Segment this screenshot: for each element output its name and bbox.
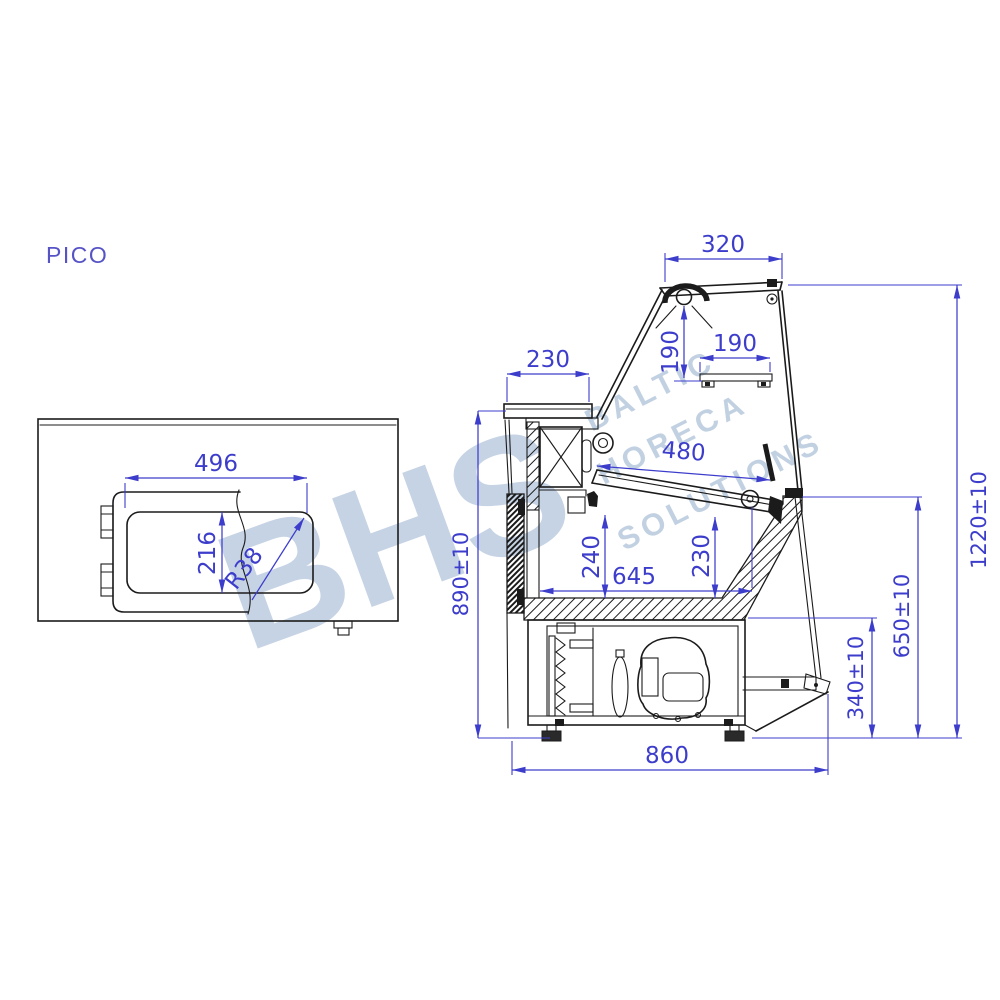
compressor-icon <box>638 638 710 722</box>
dim-machine-height: 340±10 <box>748 618 877 738</box>
dim-label: 216 <box>195 531 221 575</box>
dim-label: 650±10 <box>890 574 914 658</box>
product-title: PICO <box>46 242 108 268</box>
dim-well-height: 230 <box>689 517 715 598</box>
foot-icon <box>542 725 561 741</box>
technical-drawing-page: BHS BALTIC HORECA SOLUTIONS PICO <box>0 0 1000 1000</box>
dim-label: 860 <box>645 743 689 769</box>
dim-canopy-width: 320 <box>665 232 782 282</box>
light-ray <box>692 306 712 328</box>
dim-label: 496 <box>194 451 238 477</box>
back-skin <box>756 692 828 731</box>
dim-label: 190 <box>713 331 757 357</box>
drawing-canvas: BHS BALTIC HORECA SOLUTIONS PICO <box>0 0 1000 1000</box>
vent <box>557 623 575 633</box>
drier-icon <box>612 650 628 717</box>
dim-deck-height: 240 <box>579 515 605 598</box>
dim-label: 230 <box>689 534 715 578</box>
dim-label: 890±10 <box>449 532 473 616</box>
dim-label: 190 <box>658 330 684 374</box>
dim-label: 645 <box>612 564 656 590</box>
dim-label: 1220±10 <box>967 471 991 569</box>
side-view: 320 190 190 230 480 240 <box>449 232 991 775</box>
dim-label: 320 <box>701 232 745 258</box>
fan-icon <box>593 433 613 453</box>
foot-icon <box>725 725 744 741</box>
latch-icon <box>767 279 777 287</box>
hinge-icon <box>101 564 113 596</box>
dim-label: 240 <box>579 535 605 579</box>
dim-label: 230 <box>526 347 570 373</box>
deck-clip <box>587 491 598 507</box>
condenser-coil-icon <box>549 628 593 716</box>
dim-label: 480 <box>661 437 707 467</box>
dim-label: 340±10 <box>844 636 868 720</box>
machine-compartment <box>528 620 745 726</box>
hinge-icon <box>101 506 113 538</box>
